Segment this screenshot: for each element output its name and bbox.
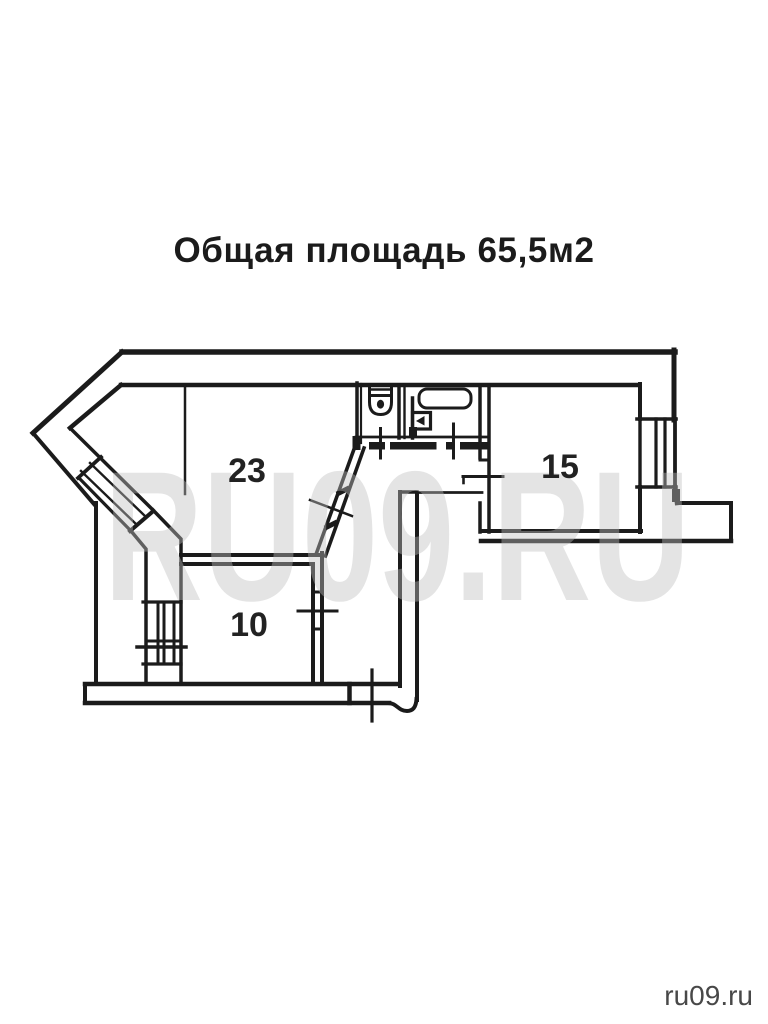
svg-text:Общая площадь 65,5м2: Общая площадь 65,5м2 <box>173 231 594 270</box>
svg-text:ru09.ru: ru09.ru <box>664 980 753 1011</box>
svg-text:RU09.RU: RU09.RU <box>104 434 690 640</box>
svg-text:15: 15 <box>541 448 579 486</box>
svg-text:23: 23 <box>228 452 266 490</box>
svg-text:10: 10 <box>230 606 268 644</box>
